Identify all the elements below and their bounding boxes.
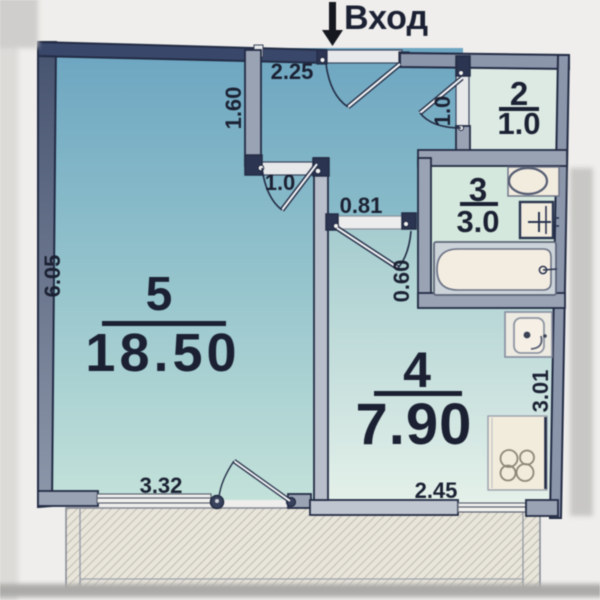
svg-text:1.0: 1.0 [430, 96, 455, 127]
svg-text:1.0: 1.0 [265, 170, 296, 195]
svg-text:2.45: 2.45 [415, 478, 458, 503]
svg-text:2.25: 2.25 [271, 59, 314, 84]
svg-text:4: 4 [403, 342, 431, 398]
svg-text:18.50: 18.50 [85, 323, 240, 383]
svg-text:0.81: 0.81 [340, 193, 383, 218]
svg-text:3.01: 3.01 [528, 370, 553, 413]
svg-text:Вход: Вход [344, 0, 428, 37]
svg-text:7.90: 7.90 [356, 392, 473, 457]
svg-text:6.05: 6.05 [40, 255, 65, 298]
svg-text:3.0: 3.0 [456, 204, 499, 239]
svg-text:0.60: 0.60 [389, 260, 414, 303]
svg-text:1.60: 1.60 [221, 87, 246, 130]
svg-text:5: 5 [146, 268, 173, 321]
svg-text:1.0: 1.0 [497, 106, 540, 141]
svg-text:3.32: 3.32 [140, 473, 183, 498]
